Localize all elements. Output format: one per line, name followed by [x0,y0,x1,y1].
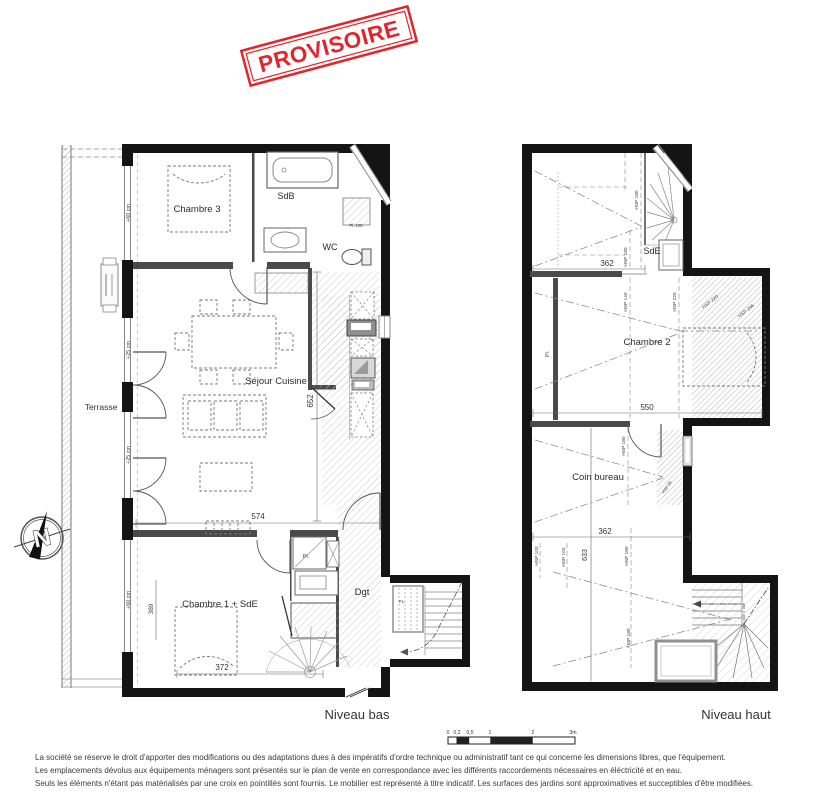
pl-haut-label: Pl. [545,350,551,357]
scale-05: 0,5 [466,730,473,736]
dim-372: 372 [215,663,229,672]
sde-label: SdE [643,246,660,256]
coin-bureau-label: Coin bureau [572,472,624,483]
niveau-haut-title: Niveau haut [701,707,771,722]
plan-niveau-haut: 362 550 362 633 HSP 180 HSP 180 HSP 140 … [522,144,778,691]
win-60-bot: +60 cm [126,590,132,609]
scale-0: 0 [447,730,450,736]
bathtub [267,152,338,188]
hsp-low-103: HSP 103 [534,546,540,565]
kitchen [347,292,376,440]
dim-652: 652 [306,394,315,408]
floor-plan-svg: Terrasse [0,0,825,800]
scale-3m: 3m [569,730,576,736]
floor-plan-page: Terrasse [0,0,825,800]
pl-stair-label: PL. [399,599,406,604]
chambre1-label: Chambre 1 + SdE [182,599,258,610]
win-60-top: +60 cm [126,203,132,222]
coin-door [628,424,661,457]
hsp-low-180a: HSP 180 [624,546,630,565]
terrace: Terrasse [62,145,122,688]
chambre2-label: Chambre 2 [624,337,671,348]
hsp-low-180b: HSP 180 [626,628,632,647]
sdb-label: SdB [277,191,294,201]
hsp-sde-b: HSP 180 [623,247,629,266]
common-stairwell: PL. [393,582,462,656]
chambre3-label: Chambre 3 [174,204,221,215]
disclaimer-line-2: Les emplacements dévolus aux équipements… [35,764,753,777]
wc-label: WC [323,242,338,252]
hsp-ch2-140: HSP 140 [623,292,629,311]
disclaimer-line-1: La société se réserve le droit d'apporte… [35,751,753,764]
hsp-low-104: HSP 104 [561,547,567,566]
terrasse-label: Terrasse [85,402,118,412]
hatch-haut [657,277,770,682]
partitions-haut [530,271,630,427]
wc-fixtures [342,198,371,265]
win-25-low: +25 cm [126,445,132,464]
pl-entry-label: Pl. [303,554,310,560]
dim-574: 574 [251,512,265,521]
scale-2: 2 [532,730,535,736]
niveau-bas-title: Niveau bas [324,707,390,722]
terrace-table [101,258,118,312]
dgt-label: Dgt [355,587,370,598]
dim-389: 389 [148,603,155,614]
hsp-coin-180: HSP 180 [621,436,627,455]
scale-02: 0,2 [453,730,460,736]
sdb-washbasin [264,228,306,252]
disclaimer: La société se réserve le droit d'apporte… [35,751,753,790]
dim-362-bot: 362 [598,527,612,536]
dim-633: 633 [582,549,589,561]
scale-1: 1 [489,730,492,736]
disclaimer-line-3: Seuls les éléments n'étant pas matériali… [35,777,753,790]
dim-550: 550 [640,403,654,412]
dim-362-top: 362 [600,259,614,268]
room-labels-haut: SdE Chambre 2 Coin bureau Pl. [545,246,671,483]
hsp-sde-a: HSP 180 [634,190,640,209]
pl105-label: Pl. 105 [349,223,363,228]
win-25-mid: +25 cm [126,340,132,359]
lower-closet [656,641,716,681]
plan-niveau-bas: Terrasse [62,144,470,697]
scale-bar: 0 0,2 0,5 1 2 3m [447,730,577,744]
provisoire-stamp: PROVISOIRE [241,6,416,85]
hsp-ch2-220: HSP 220 [672,292,678,311]
hsp-contours [540,153,679,668]
sde-shower [659,240,683,270]
coin-window [683,436,692,466]
sejour-label: Séjour Cuisine [245,376,307,387]
